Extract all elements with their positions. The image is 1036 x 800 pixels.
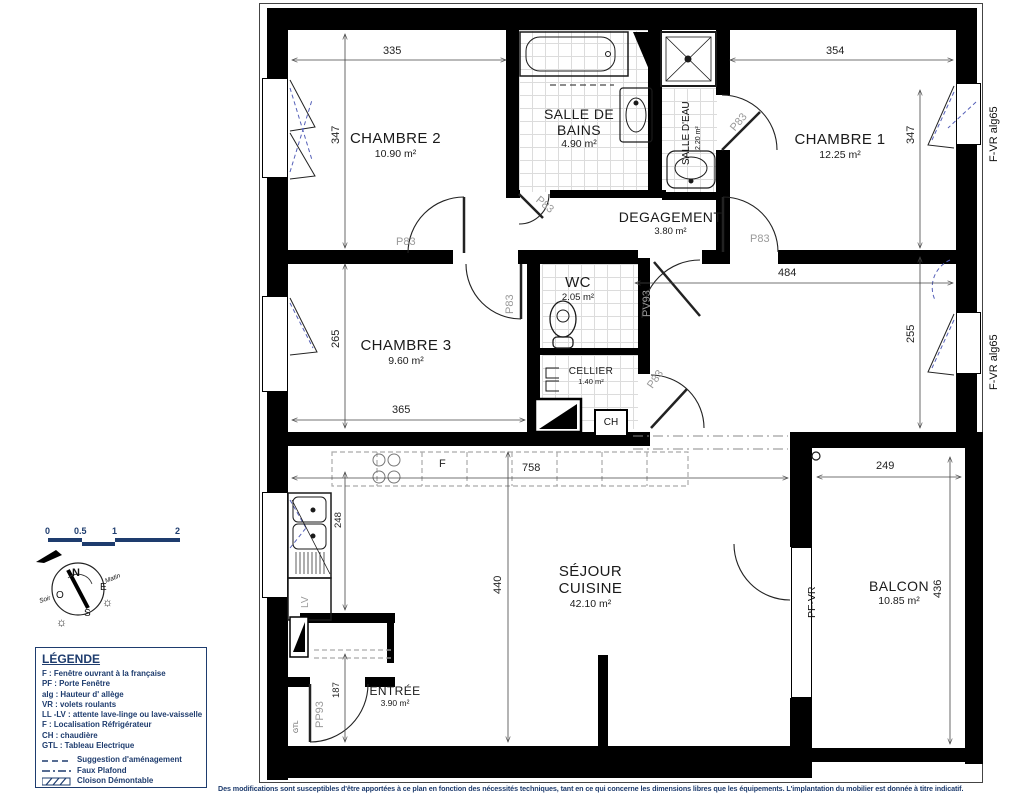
wall-sdb-sde bbox=[648, 30, 662, 193]
room-label-chambre2: CHAMBRE 210.90 m² bbox=[328, 131, 463, 161]
dim-sejour-w: 758 bbox=[520, 462, 542, 474]
dim-balcon-w: 249 bbox=[874, 460, 896, 472]
door-label-pp93: PP93 bbox=[314, 701, 326, 728]
room-label-chambre1: CHAMBRE 112.25 m² bbox=[775, 132, 905, 162]
wall-balcony-right bbox=[965, 432, 983, 764]
window-chambre2 bbox=[262, 78, 288, 178]
window-label-fvr-2: F-VR alg65 bbox=[988, 334, 1000, 390]
svg-text:O: O bbox=[56, 590, 64, 601]
room-label-sde: SALLE D'EAU bbox=[681, 101, 692, 165]
equip-label-gtl: GTL bbox=[293, 720, 300, 733]
scale-bar: 0 0.5 1 2 bbox=[44, 526, 194, 548]
dim-ch1-h: 347 bbox=[905, 124, 917, 146]
window-balcony-door bbox=[791, 547, 812, 698]
room-label-chambre3: CHAMBRE 39.60 m² bbox=[340, 338, 472, 368]
wall-sejour-right-b bbox=[790, 698, 812, 746]
window-chambre3 bbox=[262, 296, 288, 392]
door-label-ch1: P83 bbox=[750, 233, 770, 245]
legend: LÉGENDE F : Fenêtre ouvrant à la françai… bbox=[35, 647, 207, 788]
equip-label-ch: CH bbox=[596, 411, 626, 435]
door-label-ch3: P83 bbox=[504, 294, 516, 314]
dim-ch3-w: 365 bbox=[390, 404, 412, 416]
north-arrow bbox=[36, 550, 62, 563]
compass: N E S O Matin Soir ☼ ☼ bbox=[20, 542, 130, 632]
wall-entree-door-l bbox=[288, 677, 310, 687]
room-label-cellier: CELLIER1.40 m² bbox=[558, 366, 624, 387]
dim-ch2-w: 335 bbox=[381, 45, 403, 57]
wall-balcony-top bbox=[790, 432, 983, 448]
legend-suggestion: Suggestion d'aménagement bbox=[42, 755, 200, 765]
window-sejour bbox=[956, 312, 981, 374]
equip-label-lv: LV bbox=[300, 597, 311, 609]
wall-pv-stub bbox=[702, 250, 722, 264]
window-chambre1 bbox=[956, 83, 981, 145]
boiler-box: CH bbox=[594, 409, 628, 437]
sun-icon: ☼ bbox=[56, 615, 67, 629]
wall-ch2-sdb bbox=[506, 30, 519, 193]
wall-lower-mid bbox=[267, 432, 650, 446]
wall-mid-left bbox=[288, 250, 453, 264]
svg-text:E: E bbox=[100, 582, 107, 593]
wall-bottom bbox=[267, 746, 812, 778]
scale-tick-05: 0.5 bbox=[74, 526, 87, 536]
room-label-sde-area: 2.20 m² bbox=[695, 126, 702, 150]
wall-wc-top bbox=[540, 250, 638, 264]
svg-text:Matin: Matin bbox=[104, 572, 122, 585]
legend-title: LÉGENDE bbox=[42, 652, 200, 666]
room-label-sejour: SÉJOUR CUISINE42.10 m² bbox=[538, 564, 643, 610]
dim-entree-h: 187 bbox=[331, 680, 342, 700]
wall-cellier-right bbox=[638, 354, 650, 374]
wall-entree-stub bbox=[387, 613, 394, 663]
wall-ch3-right bbox=[527, 258, 540, 432]
window-label-pfvr: PF-VR bbox=[806, 587, 818, 619]
dim-kitchen-h: 248 bbox=[333, 510, 344, 530]
wall-mid-right bbox=[778, 250, 956, 264]
floor-plan: CHAMBRE 210.90 m² SALLE DE BAINS4.90 m² … bbox=[0, 0, 1036, 800]
svg-text:N: N bbox=[72, 567, 80, 579]
door-label-pv93: PV93 bbox=[641, 290, 653, 317]
room-label-degagement: DEGAGEMENT3.80 m² bbox=[603, 210, 738, 237]
dim-open-h: 255 bbox=[905, 323, 917, 345]
hatch-icon bbox=[42, 777, 72, 786]
dash-dot-line-icon bbox=[42, 768, 72, 774]
room-label-wc: WC2.05 m² bbox=[548, 275, 608, 303]
sun-icon: ☼ bbox=[102, 595, 113, 609]
wall-balcony-bottom bbox=[812, 748, 983, 762]
dim-open-w: 484 bbox=[776, 267, 798, 279]
wall-entree-top bbox=[300, 613, 395, 623]
room-label-entree: ENTRÉE3.90 m² bbox=[358, 685, 432, 709]
dim-balcon-h: 436 bbox=[932, 578, 944, 600]
dim-ch2-h: 347 bbox=[330, 124, 342, 146]
svg-text:Soir: Soir bbox=[38, 594, 52, 604]
equip-label-fridge: F bbox=[437, 458, 448, 470]
legend-faux-plafond: Faux Plafond bbox=[42, 766, 200, 776]
disclaimer-text: Des modifications sont susceptibles d'êt… bbox=[218, 784, 1034, 793]
window-label-fvr-1: F-VR alg65 bbox=[988, 106, 1000, 162]
wall-top bbox=[267, 8, 977, 30]
window-kitchen bbox=[262, 492, 288, 598]
legend-cloison: Cloison Démontable bbox=[42, 776, 200, 786]
scale-tick-0: 0 bbox=[45, 526, 50, 536]
dim-ch3-h: 265 bbox=[330, 328, 342, 350]
dim-sejour-h: 440 bbox=[492, 574, 504, 596]
room-label-sdb: SALLE DE BAINS4.90 m² bbox=[528, 107, 630, 151]
wall-sde-ch1-b bbox=[716, 150, 730, 264]
wall-sdb-bottom-a bbox=[506, 190, 520, 198]
wall-wc-cellier bbox=[530, 348, 650, 355]
door-label-ch2: P83 bbox=[396, 236, 416, 248]
wall-sejour-right-a bbox=[790, 432, 812, 547]
wall-entree-right bbox=[598, 655, 608, 746]
wall-sde-ch1-a bbox=[716, 30, 730, 95]
dashed-line-icon bbox=[42, 758, 72, 764]
scale-tick-1: 1 bbox=[112, 526, 117, 536]
dim-ch1-w: 354 bbox=[824, 45, 846, 57]
scale-tick-2: 2 bbox=[175, 526, 180, 536]
svg-text:S: S bbox=[84, 608, 91, 619]
